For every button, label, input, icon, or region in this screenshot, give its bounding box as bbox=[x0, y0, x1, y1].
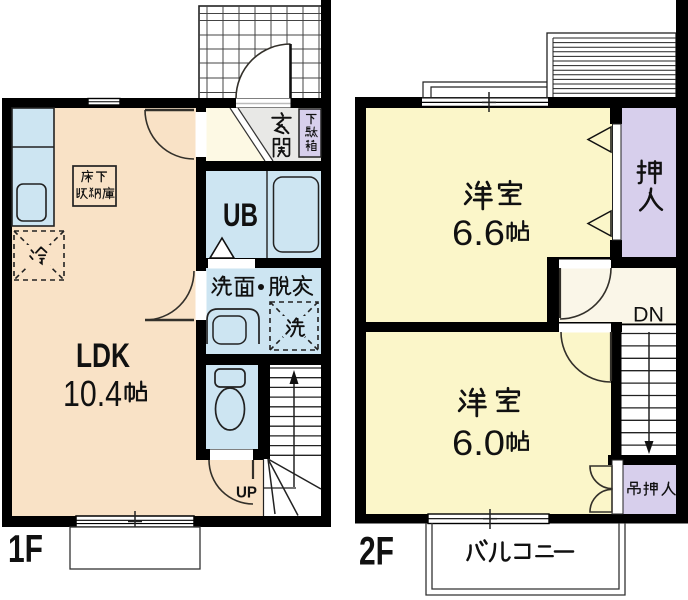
svg-text:6.6: 6.6 bbox=[452, 214, 505, 253]
svg-text:2F: 2F bbox=[359, 530, 394, 574]
svg-text:LDK: LDK bbox=[76, 337, 130, 375]
svg-text:DN: DN bbox=[633, 304, 664, 327]
svg-text:10.4: 10.4 bbox=[63, 373, 122, 414]
svg-text:UP: UP bbox=[236, 485, 257, 502]
svg-text:UB: UB bbox=[223, 197, 258, 233]
svg-text:6.0: 6.0 bbox=[452, 424, 505, 463]
svg-text:1F: 1F bbox=[8, 528, 43, 571]
